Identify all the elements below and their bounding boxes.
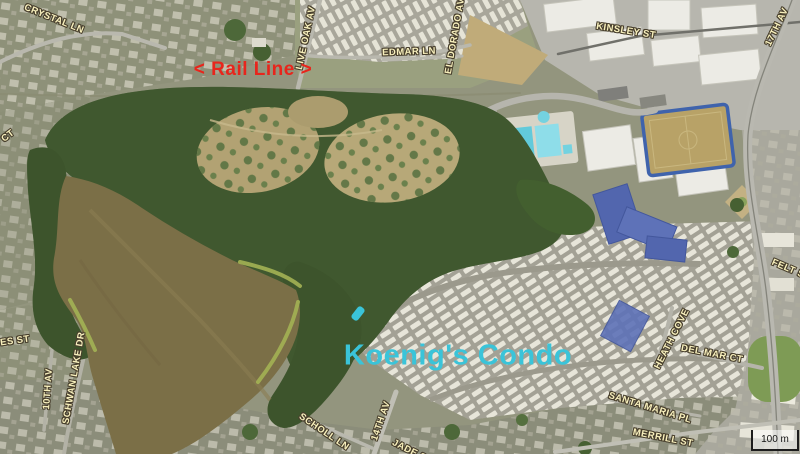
rail-line-annotation: < Rail Line > bbox=[194, 59, 312, 81]
scale-bar-label: 100 m bbox=[761, 434, 789, 445]
koenigs-condo-annotation: Koenig's Condo bbox=[344, 340, 572, 373]
aerial-imagery bbox=[0, 0, 800, 454]
soccer-field bbox=[642, 104, 735, 176]
map-viewport[interactable]: CRYSTAL LN LIVE OAK AV EDMAR LN EL DORAD… bbox=[0, 0, 800, 454]
scale-bar: 100 m bbox=[751, 430, 799, 451]
street-label-edmar-ln: EDMAR LN bbox=[382, 46, 436, 59]
